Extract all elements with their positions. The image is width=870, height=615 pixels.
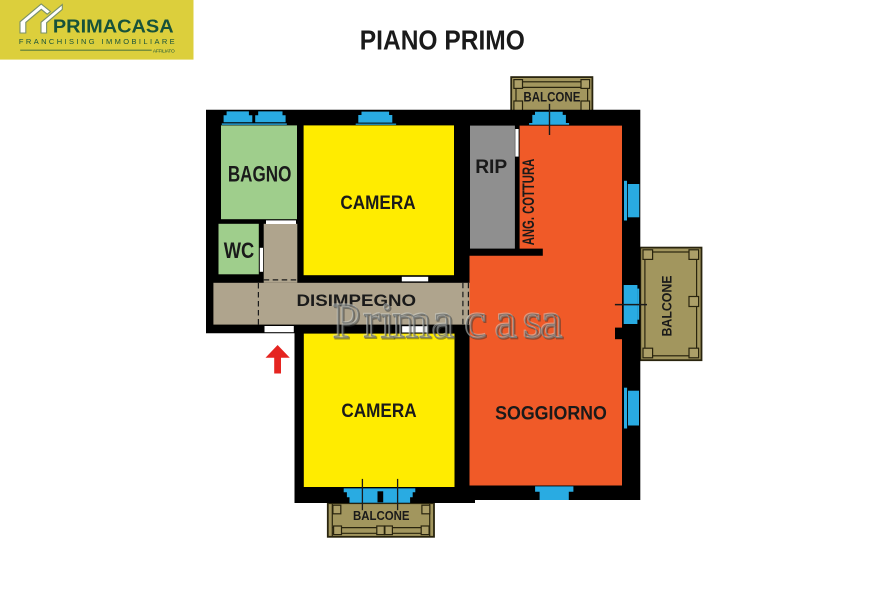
svg-text:PIANO PRIMO: PIANO PRIMO — [360, 24, 525, 55]
svg-text:RIP: RIP — [475, 156, 507, 178]
svg-text:CAMERA: CAMERA — [340, 192, 415, 214]
svg-text:BAGNO: BAGNO — [228, 161, 292, 186]
svg-text:BALCONE: BALCONE — [523, 90, 580, 105]
svg-text:AFFILIATO: AFFILIATO — [153, 49, 175, 55]
svg-text:PRIMACASA: PRIMACASA — [53, 15, 174, 36]
svg-text:ANG. COTTURA: ANG. COTTURA — [520, 159, 538, 246]
svg-text:SOGGIORNO: SOGGIORNO — [495, 403, 607, 425]
svg-text:FRANCHISING IMMOBILIARE: FRANCHISING IMMOBILIARE — [19, 37, 175, 46]
svg-text:WC: WC — [224, 238, 255, 263]
svg-text:CAMERA: CAMERA — [341, 400, 416, 422]
svg-text:Primacasa: Primacasa — [333, 293, 563, 349]
svg-text:BALCONE: BALCONE — [353, 509, 410, 523]
svg-text:BALCONE: BALCONE — [660, 276, 675, 337]
